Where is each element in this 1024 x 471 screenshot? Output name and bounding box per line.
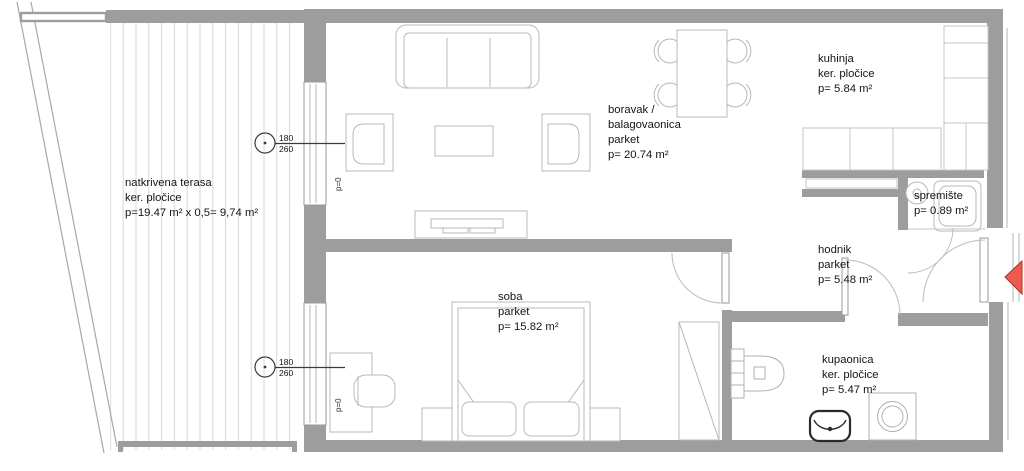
label-terasa-area: p=19.47 m² x 0,5= 9,74 m² [125, 207, 258, 219]
terrace-edge-cap [118, 441, 123, 452]
wall-left-c [304, 425, 326, 452]
dining-table [677, 30, 727, 117]
storage-door-swing [908, 228, 953, 273]
label-kupaonica-area: p= 5.47 m² [822, 384, 877, 396]
window-size-width: 180 [279, 133, 293, 143]
nightstand-right [590, 408, 620, 441]
window-size-height: 260 [279, 144, 293, 154]
wall-living-bedroom [325, 239, 732, 252]
label-soba-area: p= 15.82 m² [498, 321, 559, 333]
label-soba-floor: parket [498, 306, 530, 318]
washing-machine [869, 393, 916, 440]
wall-top-terrace [106, 10, 304, 23]
entrance-door [923, 238, 988, 302]
wall-right-lower [989, 302, 1003, 452]
terrace-edge-cap [292, 441, 297, 452]
wall-left-a [304, 23, 326, 82]
label-kupaonica-name: kupaonica [822, 354, 874, 366]
pillow [462, 402, 516, 436]
pillow [524, 402, 579, 436]
wall-bottom [325, 440, 1003, 452]
label-hodnik-name: hodnik [818, 244, 852, 256]
bathroom-door [842, 258, 900, 315]
tv-bench [415, 211, 527, 238]
wall-kitchen-hall-a [802, 170, 984, 178]
wall-bathroom-top-left [732, 311, 845, 322]
floor-plan-drawing: 180 260 180 260 p=0 p=0 natkrivena teras… [0, 0, 1024, 471]
kitchen-pass-through [806, 179, 897, 188]
desk-chair [354, 375, 395, 407]
terrace-decking [110, 23, 300, 450]
terrace-diagonal-line [17, 2, 104, 453]
terrace-edge-beam [21, 13, 106, 21]
label-spremiste-area: p= 0.89 m² [914, 205, 969, 217]
wall-storage-left [898, 170, 908, 230]
terrace [17, 2, 300, 453]
label-soba-name: soba [498, 291, 523, 303]
label-hodnik-floor: parket [818, 259, 850, 271]
coffee-table [435, 126, 493, 156]
label-kupaonica-floor: ker. pločice [822, 369, 879, 381]
kitchen-cabinets [803, 26, 988, 170]
living-room-furniture [346, 25, 590, 238]
label-boravak-floor: parket [608, 134, 640, 146]
parapet-label: p=0 [334, 398, 343, 412]
nightstand-left [422, 408, 452, 441]
sofa [396, 25, 539, 88]
window-bedroom [304, 303, 326, 425]
wall-left-b [304, 205, 326, 303]
wall-top-main [304, 9, 1001, 23]
label-boravak-name2: balagovaonica [608, 119, 682, 131]
label-spremiste-name: spremište [914, 190, 963, 202]
label-terasa-floor: ker. pločice [125, 192, 182, 204]
toilet [731, 349, 784, 398]
wall-kitchen-hall-b [802, 189, 900, 197]
wall-right-upper [987, 9, 1003, 228]
label-kuhinja-name: kuhinja [818, 53, 855, 65]
armchair-left [346, 114, 393, 171]
label-boravak-area: p= 20.74 m² [608, 149, 669, 161]
wardrobe [679, 322, 719, 440]
window-size-width: 180 [279, 357, 293, 367]
parapet-label: p=0 [334, 177, 343, 191]
terrace-diagonal-line [31, 2, 117, 447]
wall-bathroom-top-right [898, 313, 988, 326]
bedroom-door [672, 253, 729, 303]
label-kuhinja-area: p= 5.84 m² [818, 83, 873, 95]
floor-plan-canvas: 180 260 180 260 p=0 p=0 natkrivena teras… [0, 0, 1024, 471]
label-terasa-name: natkrivena terasa [125, 177, 212, 189]
terrace-bottom-edge [118, 441, 297, 447]
label-kuhinja-floor: ker. pločice [818, 68, 875, 80]
dining-set [654, 30, 751, 117]
washbasin [810, 411, 850, 441]
window-size-height: 260 [279, 368, 293, 378]
label-hodnik-area: p= 5.48 m² [818, 274, 873, 286]
label-boravak-name: boravak / [608, 104, 655, 116]
exterior-lines [1007, 28, 1019, 440]
armchair-right [542, 114, 590, 171]
